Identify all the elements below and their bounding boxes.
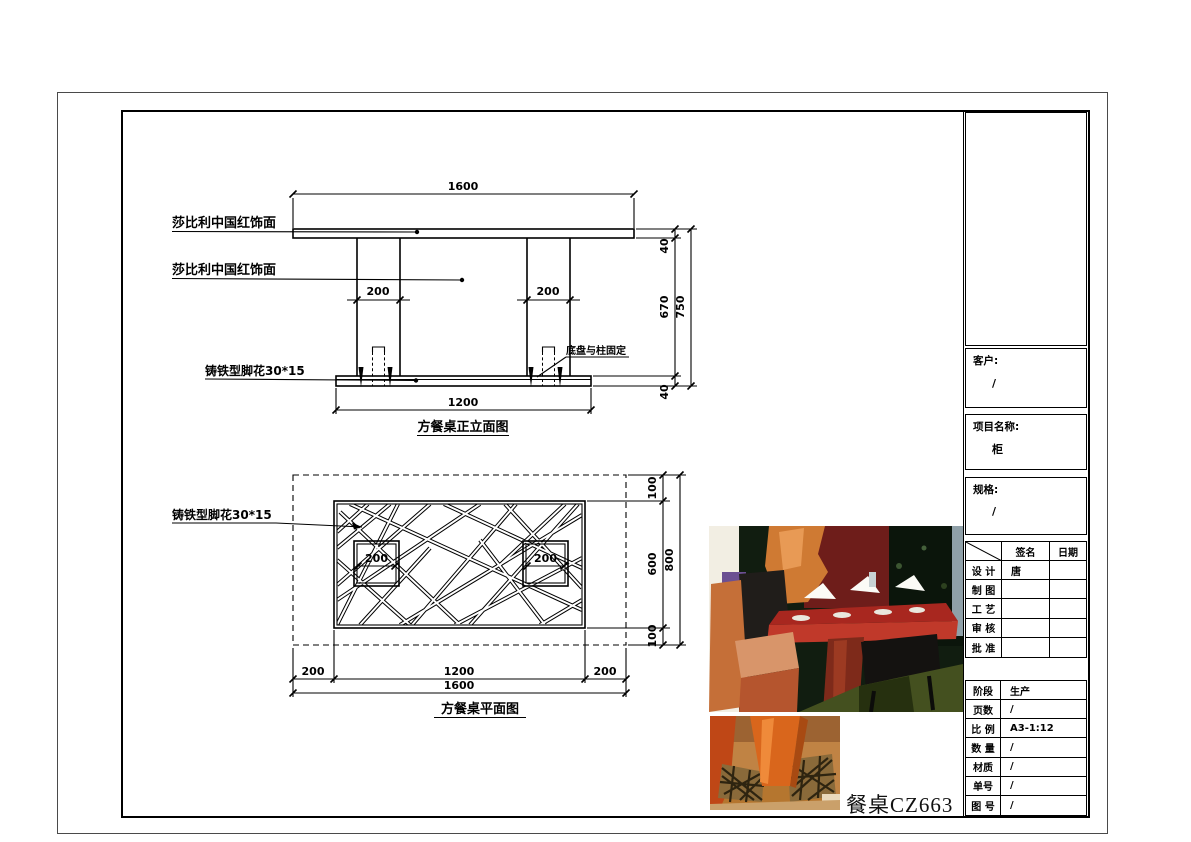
row-label: 批 准 — [966, 638, 1002, 657]
spec-label: 规格: — [973, 482, 998, 497]
title-block-empty-cell — [965, 112, 1087, 346]
row-label: 制 图 — [966, 580, 1002, 599]
elevation-caption: 方餐桌正立面图 — [417, 419, 509, 436]
plan-width-dims: 200 1200 200 1600 — [290, 630, 630, 697]
title-block-spec: 规格: / — [965, 477, 1087, 535]
client-value: / — [992, 377, 996, 390]
plan-caption: 方餐桌平面图 — [434, 701, 526, 718]
dim-text: 600 — [646, 552, 659, 575]
photo2-art — [710, 716, 840, 810]
elevation-dim-1200: 1200 — [333, 388, 595, 414]
info-label: 材质 — [966, 758, 1001, 777]
plan-view: 200 200 — [172, 472, 686, 718]
elevation-view: 1600 200 200 — [172, 180, 697, 436]
dim-text: 40 — [658, 238, 671, 254]
dim-text: 800 — [663, 548, 676, 571]
elevation-height-dims: 40 670 750 40 — [593, 226, 697, 400]
row-date — [1050, 599, 1086, 618]
anchor-left — [359, 347, 393, 387]
dim-text: 100 — [646, 476, 659, 499]
elevation-left-column — [357, 238, 400, 376]
row-sign — [1002, 638, 1050, 657]
project-label: 项目名称: — [973, 419, 1019, 434]
project-value: 柜 — [992, 441, 1003, 457]
dim-text: 200 — [534, 552, 557, 565]
signature-table: 签名 日期 设 计 唐 制 图 工 艺 审 核 批 准 — [965, 541, 1087, 658]
client-label: 客户: — [973, 353, 998, 368]
elevation-dim-1600: 1600 — [290, 180, 638, 228]
product-title: 餐桌CZ663 — [846, 789, 976, 819]
dim-text: 200 — [594, 665, 617, 678]
info-value: / — [1001, 796, 1086, 815]
label-top-finish: 莎比利中国红饰面 — [172, 215, 276, 231]
dim-text: 40 — [658, 384, 671, 400]
row-label: 工 艺 — [966, 599, 1002, 618]
row-sign — [1002, 599, 1050, 618]
row-date — [1050, 561, 1086, 580]
label-foot-plan: 铸铁型脚花30*15 — [172, 507, 272, 522]
reference-photo-dining-table — [709, 526, 963, 712]
sign-header: 签名 — [1002, 542, 1050, 561]
row-label: 设 计 — [966, 561, 1002, 580]
info-label: 阶段 — [966, 681, 1001, 700]
note-base-fix: 底盘与柱固定 — [566, 344, 626, 357]
row-date — [1050, 619, 1086, 638]
title-block-client: 客户: / — [965, 348, 1087, 408]
dim-text: 200 — [367, 285, 390, 298]
info-value: / — [1001, 777, 1086, 796]
corner-cell — [966, 542, 1002, 561]
drawing-sheet: 1600 200 200 — [0, 0, 1191, 842]
info-label: 比 例 — [966, 719, 1001, 738]
row-label: 审 核 — [966, 619, 1002, 638]
dim-text: 750 — [674, 295, 687, 318]
elevation-base — [336, 376, 591, 386]
dim-text: 1600 — [444, 679, 475, 692]
title-block-project: 项目名称: 柜 — [965, 414, 1087, 470]
row-sign — [1002, 580, 1050, 599]
svg-text:方餐桌平面图: 方餐桌平面图 — [441, 701, 519, 717]
info-label: 数 量 — [966, 738, 1001, 757]
dim-text: 100 — [646, 624, 659, 647]
date-header: 日期 — [1050, 542, 1086, 561]
row-date — [1050, 638, 1086, 657]
plan-depth-dims: 100 600 800 100 — [587, 472, 686, 649]
row-sign — [1002, 619, 1050, 638]
diagonal-line — [966, 542, 1002, 561]
info-value: / — [1001, 738, 1086, 757]
info-value: 生产 — [1001, 681, 1086, 700]
anchor-right — [529, 347, 563, 387]
dim-text: 200 — [365, 552, 388, 565]
info-table: 阶段 生产 页数 / 比 例 A3-1:12 数 量 / 材质 / 单号 / 图… — [965, 680, 1087, 816]
row-sign: 唐 — [1002, 561, 1050, 580]
info-value: / — [1001, 700, 1086, 719]
elevation-tabletop — [293, 229, 634, 238]
info-value: A3-1:12 — [1001, 719, 1086, 738]
label-column-finish: 莎比利中国红饰面 — [172, 262, 276, 278]
dim-text: 1200 — [444, 665, 475, 678]
photo1-art — [709, 526, 963, 712]
row-date — [1050, 580, 1086, 599]
elevation-right-column — [527, 238, 570, 376]
dim-text: 200 — [537, 285, 560, 298]
info-value: / — [1001, 758, 1086, 777]
info-label: 页数 — [966, 700, 1001, 719]
dim-text: 1600 — [448, 180, 479, 193]
dim-text: 1200 — [448, 396, 479, 409]
label-foot: 铸铁型脚花30*15 — [205, 363, 305, 378]
reference-photo-table-base — [710, 716, 840, 810]
svg-text:方餐桌正立面图: 方餐桌正立面图 — [417, 419, 508, 435]
dim-text: 200 — [302, 665, 325, 678]
dim-text: 670 — [658, 295, 671, 318]
spec-value: / — [992, 505, 996, 518]
